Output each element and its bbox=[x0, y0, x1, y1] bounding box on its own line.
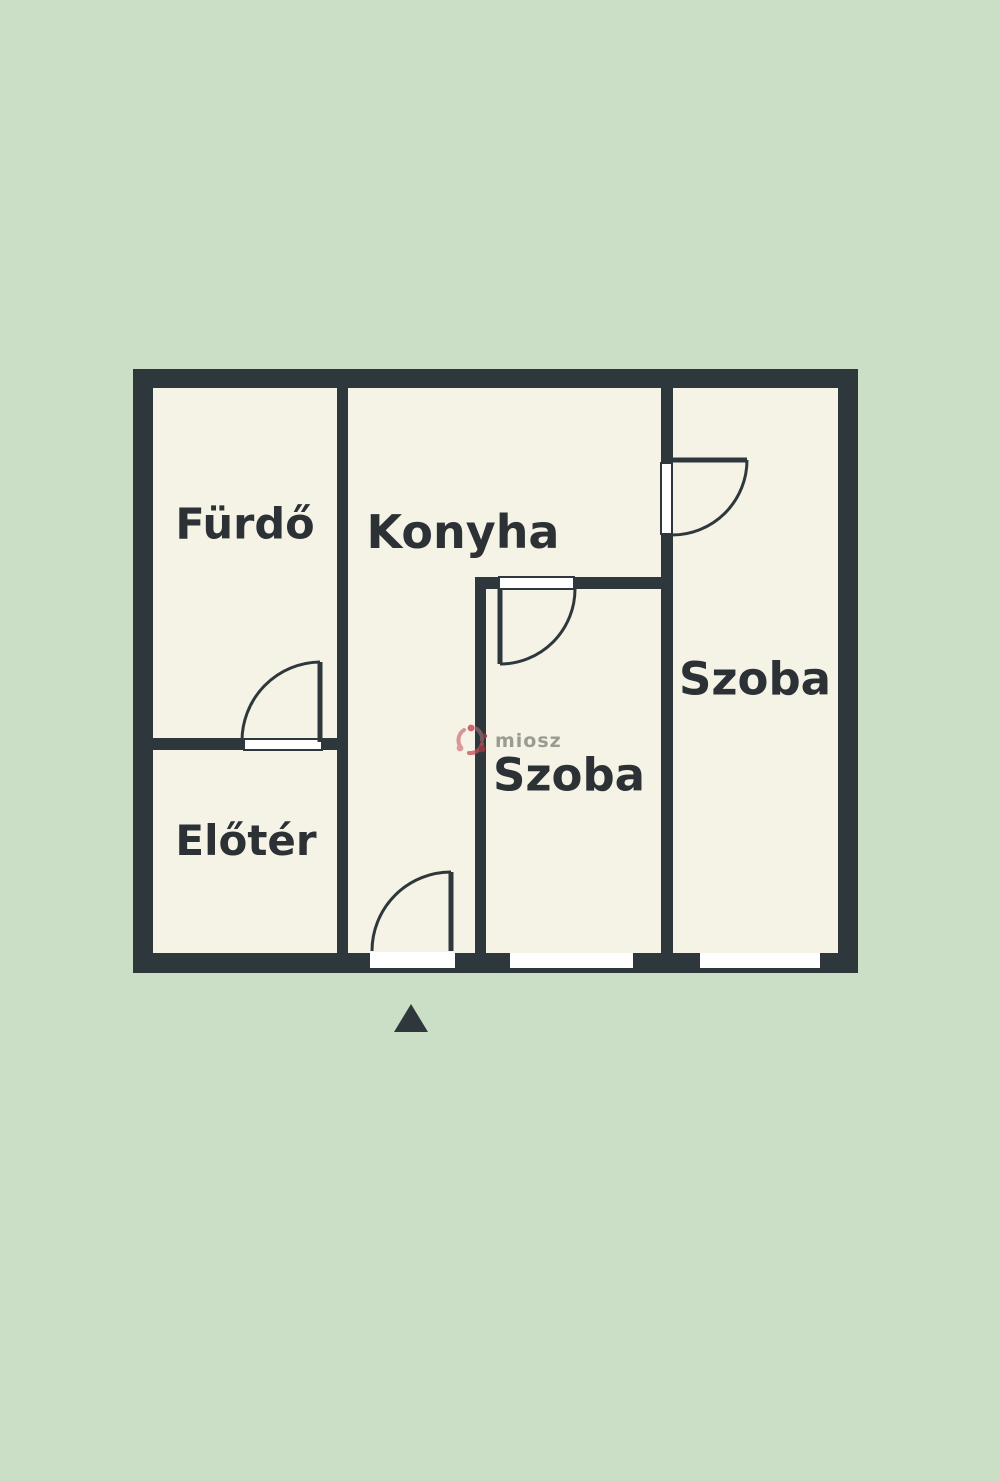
door-arc-szoba-middle bbox=[500, 589, 575, 664]
floorplan-image: Fürdő Konyha Előtér Szoba Szoba miosz bbox=[0, 0, 1000, 1481]
room-label-szoba-right: Szoba bbox=[679, 657, 831, 702]
room-label-eloter: Előtér bbox=[175, 820, 316, 862]
door-arc-furdo bbox=[242, 662, 320, 742]
watermark: miosz bbox=[452, 720, 562, 760]
watermark-logo-icon bbox=[452, 720, 490, 760]
room-label-furdo: Fürdő bbox=[175, 504, 314, 547]
door-arc-szoba-right bbox=[672, 460, 747, 535]
door-arc-entrance bbox=[372, 872, 451, 951]
watermark-text: miosz bbox=[495, 730, 562, 751]
north-arrow-icon bbox=[394, 1004, 428, 1032]
floorplan: Fürdő Konyha Előtér Szoba Szoba bbox=[133, 369, 858, 973]
room-label-konyha: Konyha bbox=[367, 509, 560, 555]
